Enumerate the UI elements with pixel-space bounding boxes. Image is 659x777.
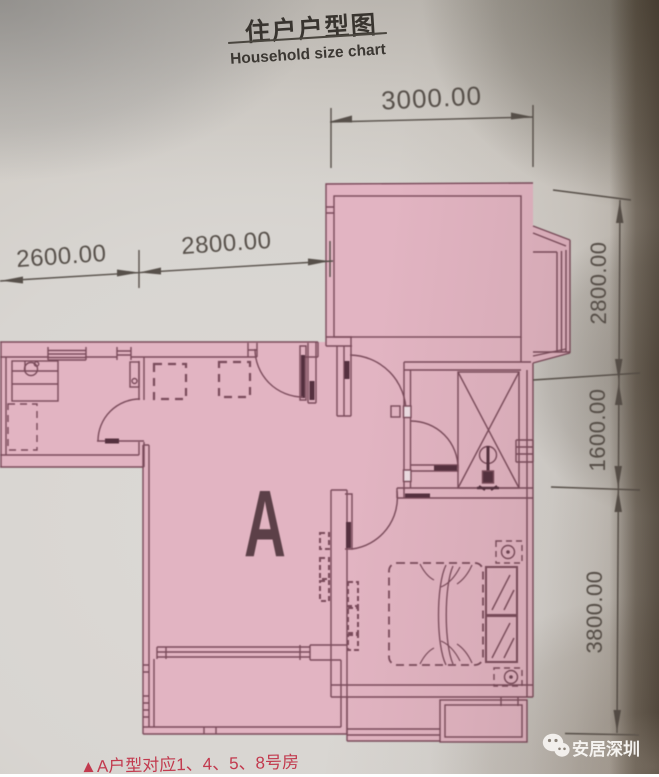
svg-text:3000.00: 3000.00 [380,80,482,115]
svg-text:2800.00: 2800.00 [586,241,611,324]
svg-text:A: A [244,470,286,576]
svg-text:2600.00: 2600.00 [15,240,107,273]
svg-text:1600.00: 1600.00 [585,388,610,471]
svg-text:2800.00: 2800.00 [180,227,272,260]
svg-text:3800.00: 3800.00 [582,570,607,653]
